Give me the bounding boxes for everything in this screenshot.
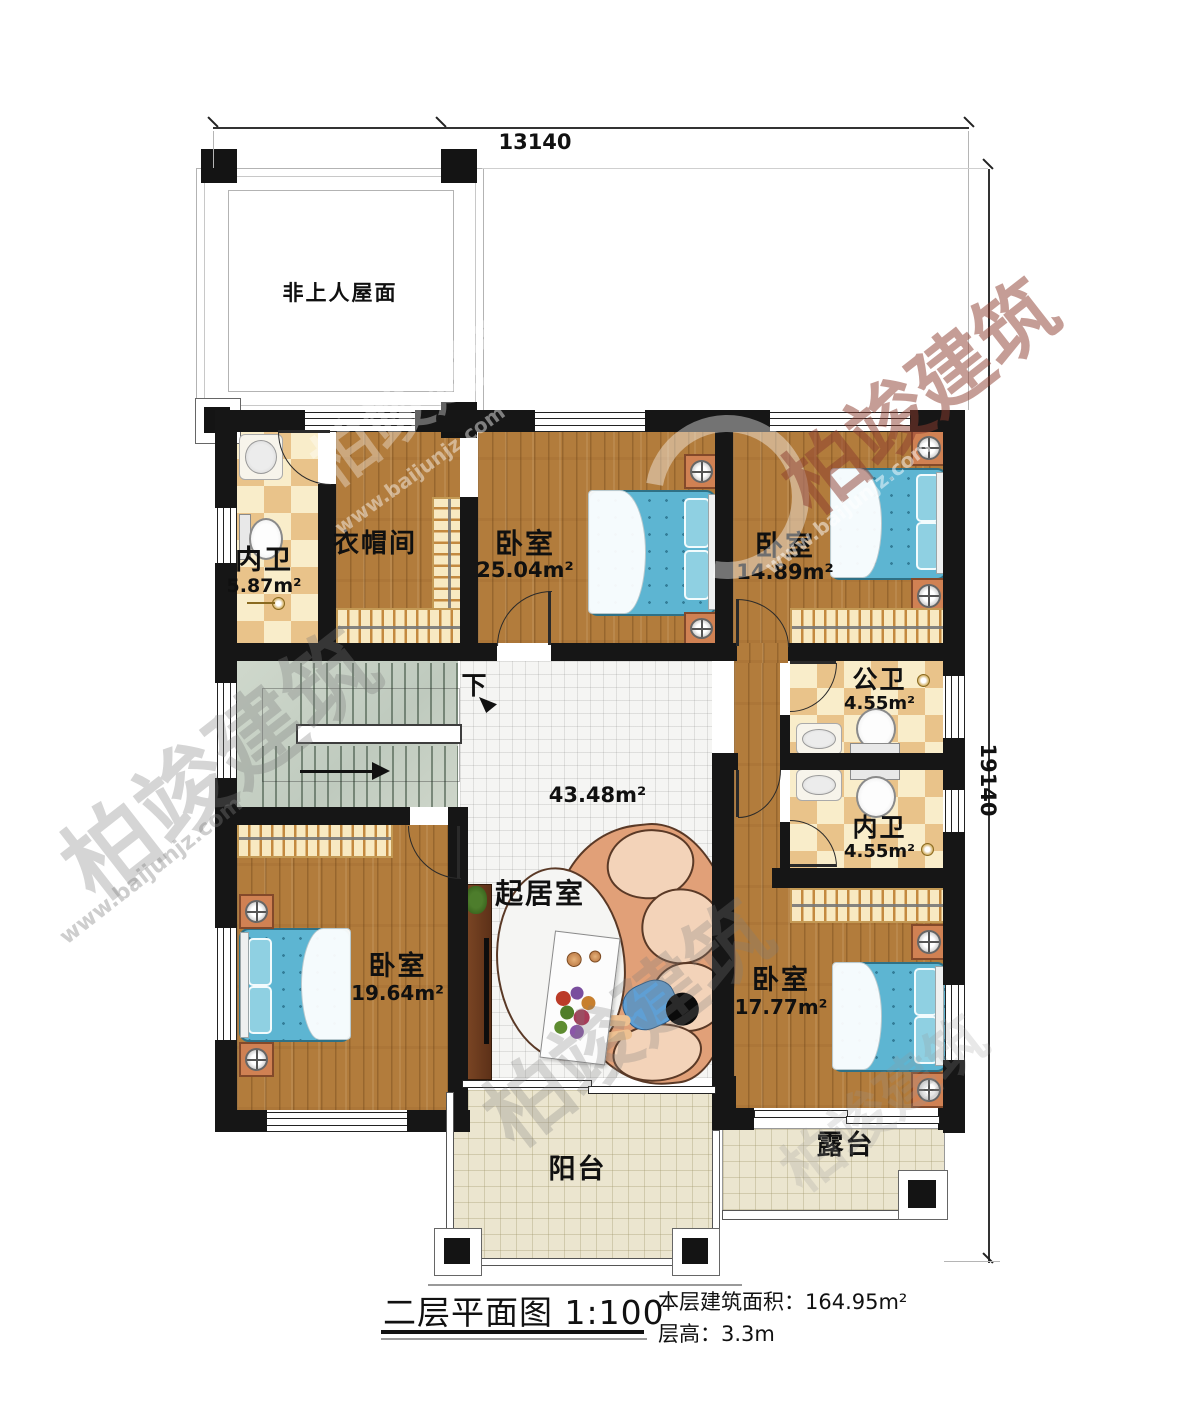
wardrobe (790, 888, 947, 923)
dimension-top-value: 13140 (495, 130, 575, 154)
wall (712, 1108, 754, 1130)
column (908, 1180, 936, 1208)
window (945, 676, 965, 738)
extension-line (944, 1261, 1000, 1262)
room-label-bedroom-b: 卧室 14.89m² (718, 530, 852, 585)
pillow (684, 498, 710, 548)
wall (318, 484, 336, 645)
room-area: 4.55m² (832, 694, 927, 714)
dimension-line-top (213, 127, 969, 129)
room-label-bedroom-a: 卧室 25.04m² (462, 528, 588, 583)
room-name: 卧室 (718, 530, 852, 561)
room-area: 17.77m² (722, 996, 840, 1018)
room-name: 衣帽间 (310, 530, 440, 559)
extension-line (968, 131, 969, 410)
wall (215, 778, 237, 928)
room-area: 4.55m² (832, 842, 927, 862)
cup (588, 950, 601, 963)
sliding-door-pane (846, 1116, 940, 1124)
headboard (240, 932, 249, 1038)
dimension-tick (207, 116, 218, 127)
bed-blanket (588, 490, 646, 614)
wall (645, 410, 770, 432)
window (305, 412, 415, 432)
wall (215, 643, 497, 661)
drawing-scale: 1:100 (565, 1293, 665, 1332)
wardrobe (336, 608, 466, 647)
drawing-title: 二层平面图 1:100 (383, 1286, 665, 1334)
sliding-door-pane (588, 1086, 716, 1094)
wall (415, 410, 535, 432)
door-leaf (790, 661, 836, 664)
window (770, 412, 910, 432)
nightstand (911, 1072, 947, 1108)
door-leaf (736, 770, 739, 817)
door-leaf (457, 826, 460, 878)
stair-direction-line (300, 770, 374, 773)
door-leaf (548, 591, 551, 645)
dimension-tick (963, 116, 974, 127)
stair-railing (296, 724, 462, 744)
extension-line (213, 131, 214, 168)
room-label-bath-inner: 内卫 4.55m² (832, 814, 927, 862)
nightstand (684, 454, 719, 489)
room-area: 43.48m² (540, 784, 655, 808)
room-label-balcony: 阳台 (525, 1155, 630, 1185)
wall (712, 753, 738, 770)
stair-down-label: 下 (458, 672, 492, 700)
dimension-tick (435, 116, 446, 127)
toilet (856, 776, 896, 818)
room-label-bedroom-c: 卧室 19.64m² (340, 952, 455, 1005)
wall (780, 715, 790, 770)
cup (566, 951, 583, 968)
window (217, 928, 237, 1040)
room-name: 露台 (793, 1131, 898, 1161)
window (945, 985, 965, 1060)
window (535, 412, 645, 432)
room-label-cloakroom: 衣帽间 (310, 530, 440, 559)
room-area: 25.04m² (462, 559, 588, 583)
window (267, 1112, 407, 1132)
pillow (248, 938, 272, 986)
flower-arrangement (551, 984, 600, 1045)
room-label-living: 起居室 (476, 878, 604, 909)
floor-area-note: 本层建筑面积：164.95m² (658, 1286, 907, 1316)
room-name: 内卫 (832, 814, 927, 842)
nightstand (239, 894, 274, 929)
room-area-living: 43.48m² (540, 784, 655, 808)
drain-leader (247, 602, 275, 604)
room-name: 卧室 (340, 952, 455, 982)
drawing-title-text: 二层平面图 (383, 1293, 553, 1332)
roof-column (441, 149, 477, 183)
wall (407, 1110, 470, 1132)
pillow (684, 550, 710, 600)
sink (796, 769, 842, 801)
room-label-bath-master: 内卫 5.87m² (214, 546, 314, 598)
wall (938, 1108, 965, 1130)
room-name: 非上人屋面 (270, 282, 410, 306)
wall (943, 410, 965, 676)
door-leaf (790, 864, 836, 867)
room-name: 卧室 (722, 966, 840, 996)
title-underline-thin (381, 1338, 647, 1340)
wall (712, 755, 734, 1130)
wall (943, 832, 965, 985)
extension-line (482, 168, 988, 169)
dimension-right-value: 19140 (976, 715, 1000, 845)
room-area: 19.64m² (340, 982, 455, 1004)
wardrobe (790, 608, 947, 647)
floor-area-label: 本层建筑面积： (658, 1290, 805, 1314)
room-name: 内卫 (214, 546, 314, 576)
room-area: 5.87m² (214, 576, 314, 597)
sink (796, 723, 842, 755)
floor-height-note: 层高：3.3m (658, 1318, 775, 1348)
tv (484, 938, 489, 1044)
column (682, 1238, 708, 1264)
wall (215, 1110, 267, 1132)
floor-plan: 13140 19140 非上人屋面 内卫 5.87m² 衣帽间 卧室 25.04… (0, 0, 1200, 1426)
wall (215, 807, 410, 825)
room-label-roof: 非上人屋面 (270, 282, 410, 306)
floor-area-value: 164.95m² (805, 1290, 907, 1314)
room-name: 阳台 (525, 1155, 630, 1185)
wall (551, 643, 737, 661)
floor-height-value: 3.3m (721, 1322, 775, 1346)
sliding-door-pane (754, 1110, 848, 1118)
room-label-bedroom-d: 卧室 17.77m² (722, 966, 840, 1019)
floor-height-label: 层高： (658, 1322, 721, 1346)
wall (788, 643, 965, 661)
sliding-door-pane (462, 1080, 592, 1088)
room-label-bath-public: 公卫 4.55m² (832, 666, 927, 714)
wall (943, 738, 965, 790)
door-leaf (278, 430, 330, 433)
wall (215, 410, 237, 508)
stair-arrow-icon (372, 762, 390, 780)
wall (772, 868, 945, 888)
door-leaf (736, 599, 739, 646)
nightstand (239, 1042, 274, 1077)
stair-down-text: 下 (458, 672, 492, 700)
floor-drain (272, 597, 285, 610)
room-area: 14.89m² (718, 561, 852, 585)
roof-column (201, 149, 237, 183)
room-name: 公卫 (832, 666, 927, 694)
window (945, 790, 965, 832)
wall (790, 753, 945, 770)
nightstand (911, 430, 947, 466)
pillow (248, 986, 272, 1034)
window (217, 683, 237, 778)
room-label-terrace: 露台 (793, 1131, 898, 1161)
sink (239, 434, 283, 480)
nightstand (911, 924, 947, 960)
room-name: 卧室 (462, 528, 588, 559)
nightstand (684, 612, 719, 645)
column (444, 1238, 470, 1264)
room-name: 起居室 (476, 878, 604, 909)
